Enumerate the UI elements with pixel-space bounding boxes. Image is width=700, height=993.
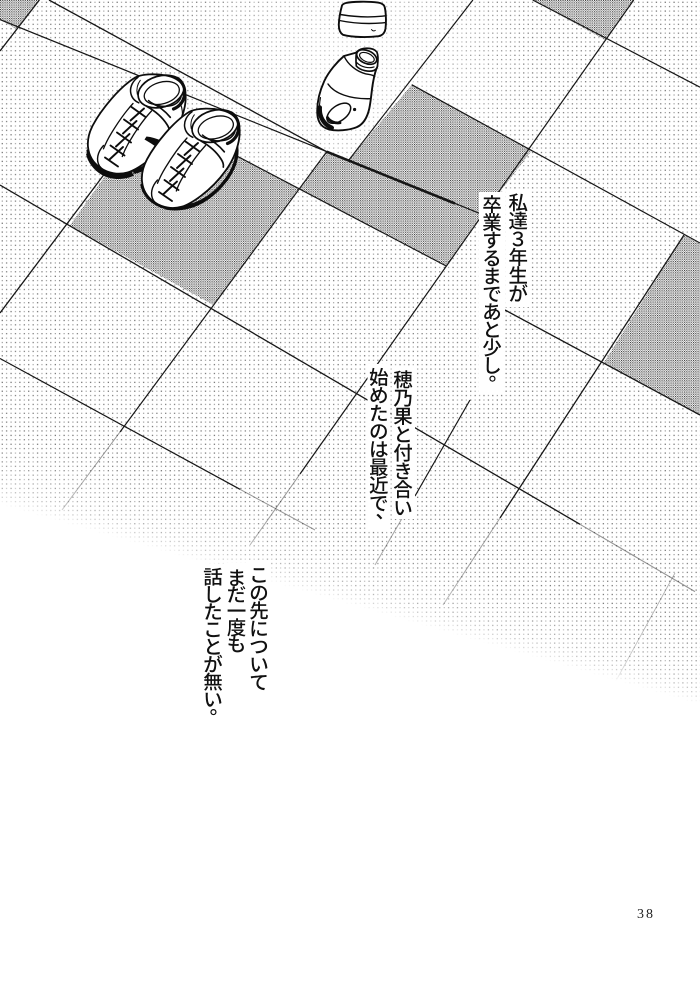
svg-text:38: 38 bbox=[637, 907, 655, 922]
